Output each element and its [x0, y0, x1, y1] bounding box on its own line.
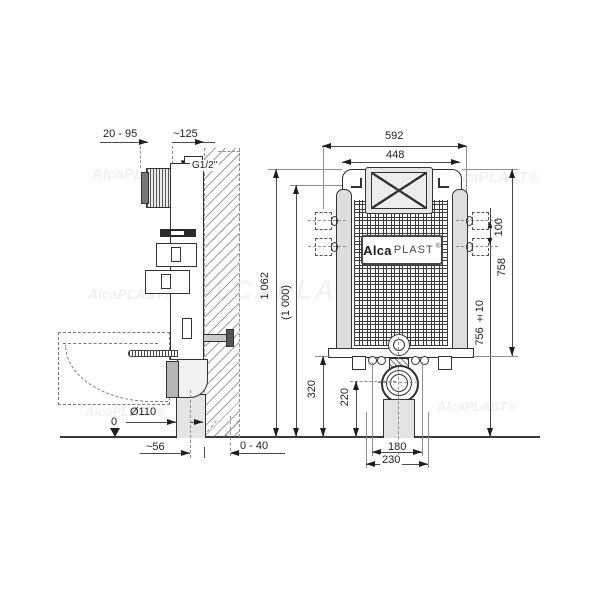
dim-arrow — [293, 185, 299, 194]
extension-line — [372, 362, 373, 456]
mechanism-slot — [171, 247, 181, 262]
dim-label-wall-finish: 0 - 40 — [240, 440, 268, 452]
dim-line — [323, 356, 324, 437]
dim-line — [490, 246, 491, 437]
fixing-bracket — [315, 238, 332, 256]
fixing-hole — [331, 242, 338, 252]
corner-mark-icon — [351, 178, 362, 188]
dim-arrow — [181, 450, 190, 456]
ground-line — [60, 436, 540, 438]
dim-label-outlet-offset: ~56 — [146, 441, 165, 453]
dim-line — [322, 146, 467, 147]
toilet-bowl-rim-line — [63, 343, 158, 344]
fixing-hole — [466, 216, 473, 226]
pipe-flange — [141, 172, 149, 204]
dim-label-ref-height: (1 000) — [280, 285, 292, 320]
dim-arrow — [167, 419, 176, 425]
dim-tick — [204, 447, 205, 458]
dim-arrow — [488, 221, 493, 228]
dim-arrow — [293, 428, 299, 437]
dim-label-outlet-dia: Ø110 — [130, 406, 156, 418]
floor-zero-label: 0 — [111, 416, 117, 428]
dim-arrow — [320, 428, 326, 437]
access-opening-cover — [371, 172, 427, 209]
dim-arrow — [139, 139, 148, 145]
extension-line — [323, 147, 324, 209]
extension-line — [366, 412, 367, 468]
fixing-bracket — [315, 212, 332, 230]
dim-label-outer-width: 592 — [385, 130, 403, 142]
dim-line — [172, 142, 215, 143]
bowl-bolt — [377, 356, 386, 365]
leader-line — [218, 151, 240, 152]
dim-arrow — [413, 449, 422, 455]
mounting-rail-left — [336, 189, 352, 350]
mounting-rail-right — [452, 189, 468, 350]
dim-arrow — [320, 356, 326, 365]
styrofoam-grid — [354, 200, 448, 346]
brand-plast: PLAST — [394, 244, 434, 256]
elbow-gasket — [166, 361, 179, 398]
water-supply-pipe — [146, 168, 173, 208]
flush-valve-slot — [171, 231, 184, 235]
dim-line — [276, 169, 277, 437]
brand-registered-icon: ® — [436, 243, 441, 250]
dim-arrow — [509, 169, 515, 178]
dim-arrow — [487, 428, 493, 437]
watermark: AlcaPLAST® — [437, 399, 517, 414]
foot-left — [352, 356, 366, 370]
mechanism-slot — [161, 274, 171, 289]
fixing-hole — [466, 242, 473, 252]
dim-label-outlet-gap: 230 — [380, 454, 402, 466]
inlet-thread-label: G1/2" — [190, 160, 219, 171]
corner-mark-icon — [438, 178, 449, 188]
pipe-centerline — [190, 390, 191, 458]
dim-arrow — [195, 139, 204, 145]
technical-drawing-canvas: AlcaPLAST® AlcaPLAST® AlcaPLAST® ALCAPLA… — [0, 0, 600, 600]
dim-arrow — [488, 238, 493, 245]
extension-line — [140, 146, 141, 168]
wall-anchor-plate — [226, 329, 234, 347]
dim-arrow — [273, 169, 279, 178]
extension-line — [422, 362, 423, 456]
level-marker-icon — [110, 428, 120, 437]
extension-line — [472, 356, 518, 357]
dim-label-base-height: 320 — [306, 380, 318, 398]
dim-label-fixing-height: 756 ±10 — [474, 300, 486, 346]
drain-pipe-side — [176, 394, 206, 438]
wall-hatch — [204, 148, 240, 437]
dim-label-body-height: 758 — [496, 258, 508, 276]
dim-label-inner-width: 448 — [386, 149, 404, 161]
extension-line — [172, 146, 173, 164]
dim-arrow — [353, 428, 359, 437]
dim-label-fixing-gap: 100 — [493, 218, 505, 236]
dim-line — [342, 162, 460, 163]
mounting-studs — [128, 350, 178, 357]
dim-arrow — [451, 159, 460, 165]
finish-surface-line — [230, 416, 231, 456]
dim-arrow — [273, 428, 279, 437]
dim-arrow — [353, 381, 359, 390]
dim-label-total-height: 1 062 — [259, 272, 271, 300]
fixing-bracket — [472, 238, 489, 256]
outlet-centerline-h — [378, 382, 418, 383]
dim-label-inlet-range: 20 - 95 — [103, 128, 137, 140]
brand-plate: AlcaPLAST® — [361, 235, 443, 265]
dim-arrow — [509, 347, 515, 356]
dim-arrow — [342, 159, 351, 165]
extension-line — [428, 412, 429, 468]
fixing-bracket — [472, 212, 489, 230]
drain-pipe-front — [383, 399, 415, 438]
foot-right — [438, 356, 452, 370]
extension-line — [268, 169, 342, 170]
inlet-seat-circle-inner — [393, 339, 405, 351]
fixing-hole — [331, 216, 338, 226]
dim-arrow — [366, 461, 375, 467]
dim-label-outlet-axis: 220 — [339, 388, 351, 406]
outlet-bend-ring-inner — [390, 374, 408, 392]
brand-alca: Alca — [363, 243, 392, 258]
dim-line — [296, 185, 297, 437]
dim-arrow — [230, 450, 239, 456]
frame-slot — [182, 318, 192, 339]
bowl-bolt — [411, 356, 420, 365]
dim-arrow — [419, 461, 428, 467]
dim-arrow — [194, 419, 203, 425]
dim-line — [512, 169, 513, 356]
